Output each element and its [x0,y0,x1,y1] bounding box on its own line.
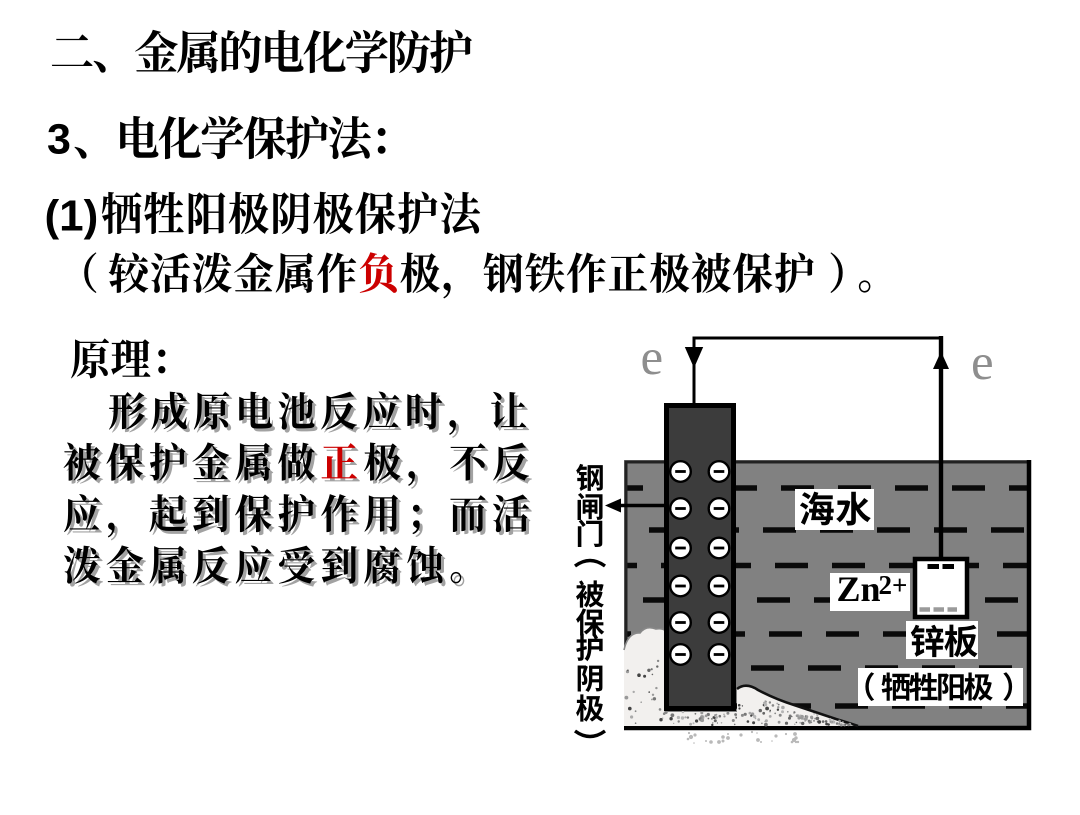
svg-text:e: e [641,330,664,386]
svg-text:3: 3 [47,116,71,164]
svg-text:(1): (1) [45,192,99,241]
svg-text:2+: 2+ [879,570,908,600]
svg-text:Zn: Zn [837,569,881,609]
svg-text:e: e [971,335,994,391]
